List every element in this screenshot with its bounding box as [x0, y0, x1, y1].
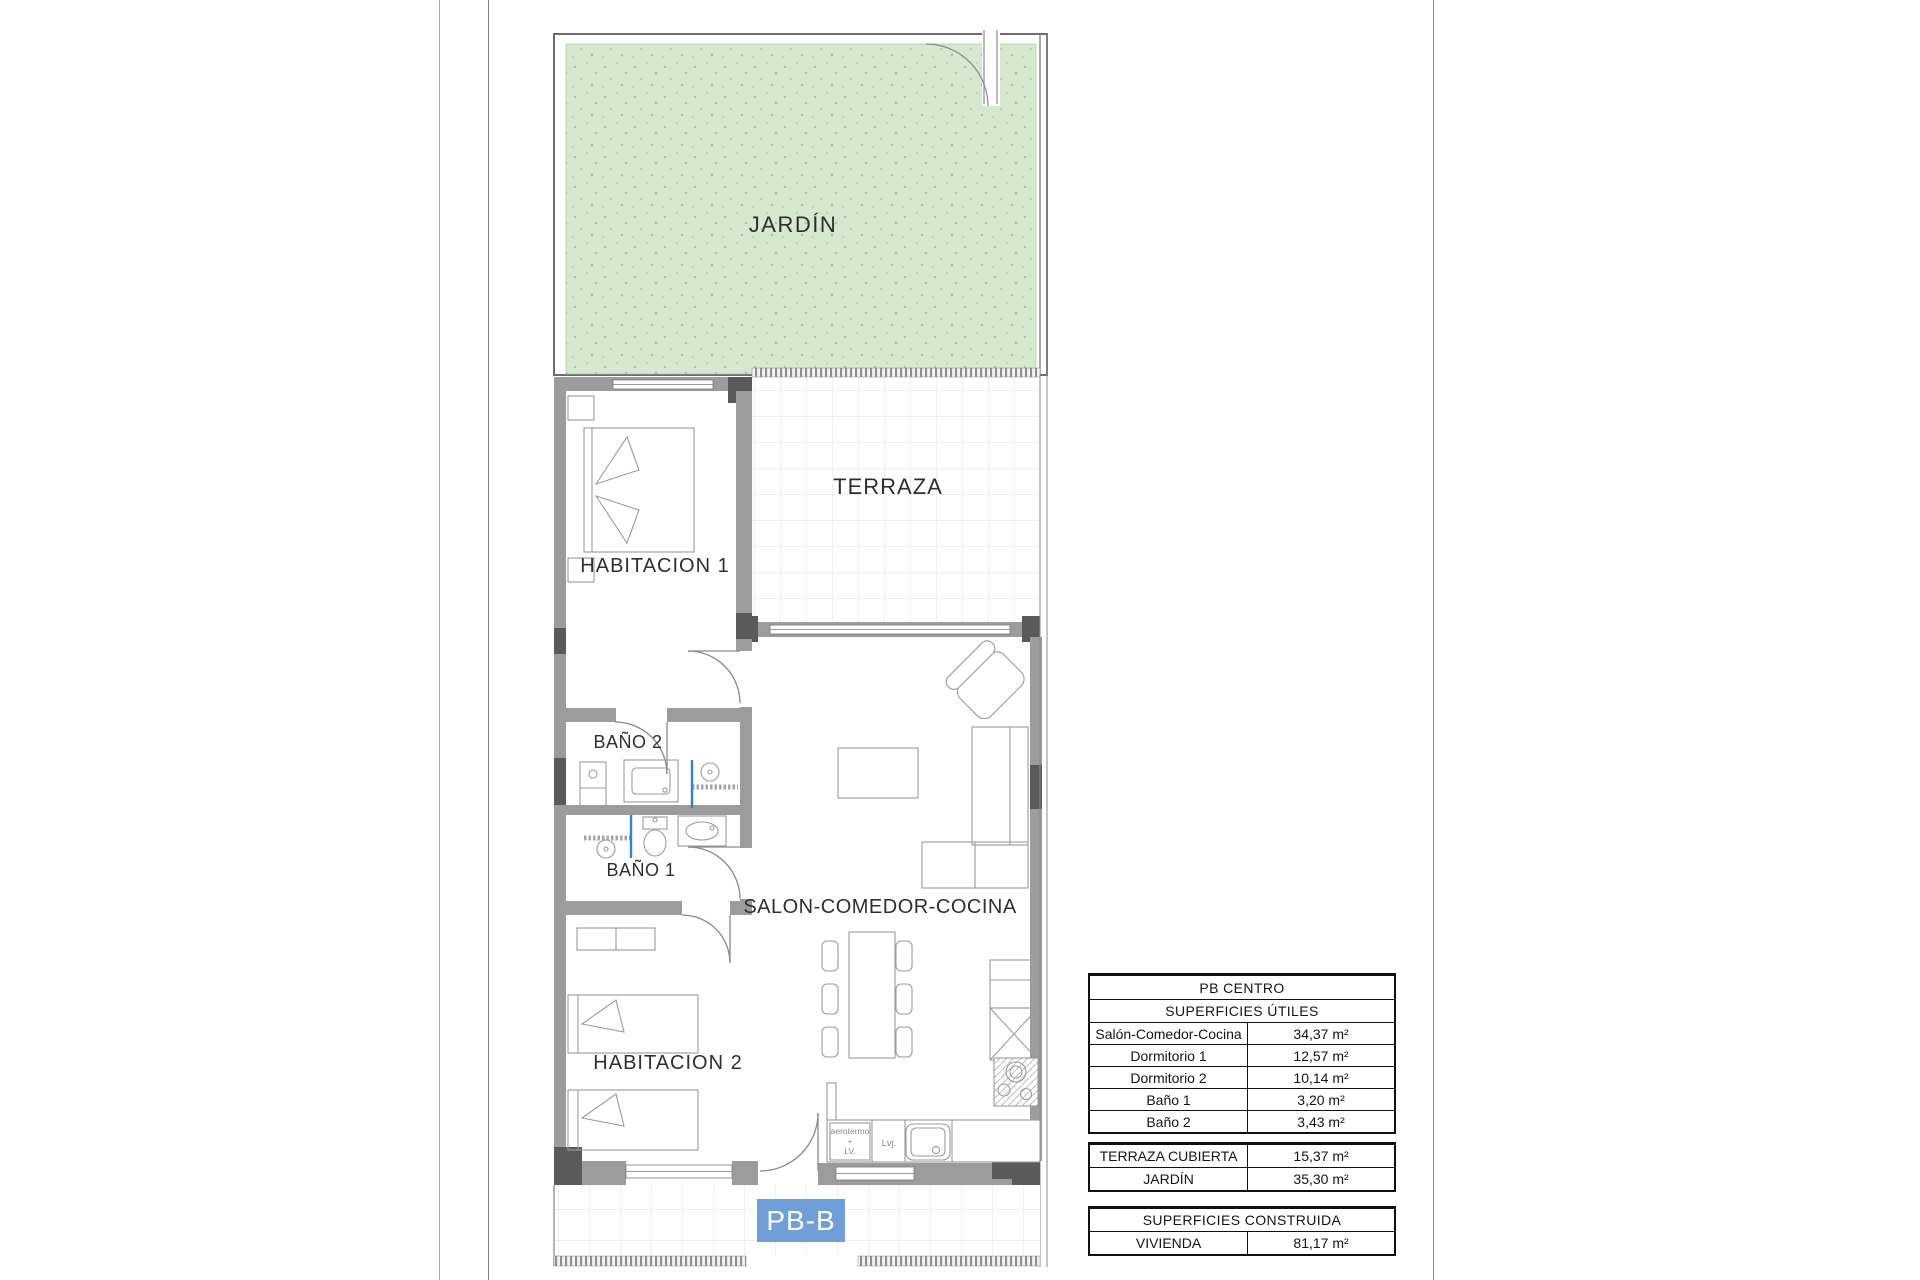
- superficies-utiles-table: PB CENTRO SUPERFICIES ÚTILES Salón-Comed…: [1088, 973, 1396, 1134]
- habitacion2-furniture: [568, 928, 698, 1150]
- dining-table: [849, 932, 895, 1058]
- habitacion2-label: HABITACION 2: [593, 1052, 742, 1074]
- row-label: Baño 2: [1090, 1111, 1248, 1132]
- row-label: JARDÍN: [1090, 1168, 1248, 1190]
- table-row: Dormitorio 2 10,14 m²: [1090, 1066, 1394, 1088]
- chair: [822, 1027, 838, 1057]
- row-value: 10,14 m²: [1248, 1067, 1394, 1088]
- bano2-label: BAÑO 2: [593, 731, 662, 752]
- table-row: Salón-Comedor-Cocina 34,37 m²: [1090, 1022, 1394, 1044]
- table-title: SUPERFICIES CONSTRUIDA: [1090, 1209, 1394, 1231]
- floor-plan-drawing: JARDÍN TERRAZA HABITACION 1 BAÑO 2 BAÑO …: [0, 0, 1920, 1280]
- superficies-exteriores-table: TERRAZA CUBIERTA 15,37 m² JARDÍN 35,30 m…: [1088, 1142, 1396, 1192]
- sofa-l-vertical: [972, 727, 1028, 845]
- entrance-door-arc: [760, 1113, 818, 1171]
- bano1-door-arc: [688, 847, 740, 899]
- aerotermo-label-line3: LV.: [844, 1146, 855, 1156]
- aerotermo-label-line2: +: [848, 1136, 853, 1146]
- table-row: JARDÍN 35,30 m²: [1090, 1167, 1394, 1190]
- bed-single-2: [568, 1090, 698, 1150]
- bano2-fixtures: [580, 760, 738, 808]
- unit-badge: PB-B: [757, 1199, 845, 1242]
- table-subtitle: SUPERFICIES ÚTILES: [1090, 1000, 1394, 1022]
- jardin-label: JARDÍN: [749, 212, 837, 237]
- shower-head-icon: [701, 763, 719, 781]
- row-value: 15,37 m²: [1248, 1145, 1394, 1167]
- row-value: 3,20 m²: [1248, 1089, 1394, 1110]
- lvj-label: Lvj.: [882, 1138, 897, 1149]
- chair: [896, 1027, 912, 1057]
- row-label: Dormitorio 1: [1090, 1045, 1248, 1066]
- chair: [822, 984, 838, 1014]
- bano1-label: BAÑO 1: [606, 859, 675, 880]
- table-row: TERRAZA CUBIERTA 15,37 m²: [1090, 1145, 1394, 1167]
- row-value: 12,57 m²: [1248, 1045, 1394, 1066]
- terraza-area: [742, 368, 1040, 642]
- armchair: [943, 638, 1028, 723]
- table-row: VIVIENDA 81,17 m²: [1090, 1231, 1394, 1254]
- superficies-construida-table: SUPERFICIES CONSTRUIDA VIVIENDA 81,17 m²: [1088, 1206, 1396, 1256]
- row-value: 3,43 m²: [1248, 1111, 1394, 1132]
- row-label: VIVIENDA: [1090, 1232, 1248, 1254]
- row-value: 81,17 m²: [1248, 1232, 1394, 1254]
- habitacion2-door-arc: [682, 915, 730, 963]
- chair: [822, 941, 838, 971]
- row-label: TERRAZA CUBIERTA: [1090, 1145, 1248, 1167]
- habitacion1-label: HABITACION 1: [580, 555, 729, 577]
- salon-label: SALON-COMEDOR-COCINA: [743, 896, 1017, 918]
- row-label: Salón-Comedor-Cocina: [1090, 1023, 1248, 1044]
- shower-head-icon: [597, 840, 615, 858]
- habitacion1-door-arc: [688, 651, 740, 703]
- chair: [896, 984, 912, 1014]
- table-row: Baño 1 3,20 m²: [1090, 1088, 1394, 1110]
- table-title: PB CENTRO: [1090, 976, 1394, 999]
- table-row: Dormitorio 1 12,57 m²: [1090, 1044, 1394, 1066]
- row-value: 34,37 m²: [1248, 1023, 1394, 1044]
- table-row: Baño 2 3,43 m²: [1090, 1110, 1394, 1132]
- garden-area: [554, 30, 1047, 375]
- terraza-label: TERRAZA: [833, 474, 943, 499]
- row-value: 35,30 m²: [1248, 1168, 1394, 1190]
- aerotermo-label-line1: aerotermo: [831, 1126, 870, 1136]
- bano1-fixtures: [584, 815, 726, 858]
- row-label: Dormitorio 2: [1090, 1067, 1248, 1088]
- chair: [896, 941, 912, 971]
- row-label: Baño 1: [1090, 1089, 1248, 1110]
- coffee-table: [838, 748, 918, 798]
- floor-plan-sheet: JARDÍN TERRAZA HABITACION 1 BAÑO 2 BAÑO …: [0, 0, 1920, 1280]
- bed-single-1: [568, 995, 698, 1053]
